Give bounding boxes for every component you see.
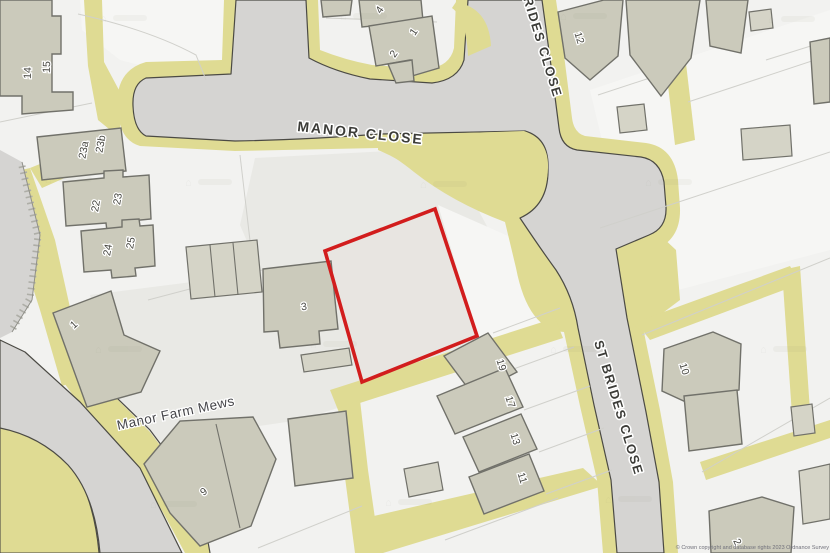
building-mews-square: [288, 411, 353, 486]
building-east-edge: [810, 38, 830, 104]
building-stub-left: [321, 0, 352, 17]
svg-text:⌂: ⌂: [100, 13, 107, 25]
house-number-23: 23: [111, 192, 125, 206]
house-number-24: 24: [101, 243, 115, 257]
svg-text:⌂: ⌂: [560, 11, 567, 23]
building-shed: [404, 462, 443, 497]
svg-text:⌂: ⌂: [95, 344, 102, 356]
copyright-attribution: © Crown copyright and database rights 20…: [676, 544, 830, 551]
svg-text:⌂: ⌂: [768, 14, 775, 26]
svg-text:⌂: ⌂: [340, 11, 347, 23]
svg-text:⌂: ⌂: [45, 174, 52, 186]
svg-text:⌂: ⌂: [420, 179, 427, 191]
house-number-22: 22: [89, 199, 103, 213]
building-ne-d: [741, 125, 792, 160]
svg-text:⌂: ⌂: [185, 177, 192, 189]
building-ne-e: [617, 104, 647, 133]
building-corner-se: [799, 464, 830, 524]
svg-text:⌂: ⌂: [550, 344, 557, 356]
house-number-25: 25: [124, 236, 138, 250]
map-canvas[interactable]: MANOR CLOSE BRIDES CLOSE ST BRIDES CLOSE…: [0, 0, 830, 553]
building-ne-b: [706, 0, 748, 53]
house-number-14: 14: [22, 67, 34, 79]
svg-text:⌂: ⌂: [150, 499, 157, 511]
svg-text:⌂: ⌂: [760, 344, 767, 356]
svg-text:⌂: ⌂: [645, 177, 652, 189]
garage-row: [186, 240, 262, 299]
map-viewport[interactable]: MANOR CLOSE BRIDES CLOSE ST BRIDES CLOSE…: [0, 0, 830, 553]
svg-text:⌂: ⌂: [310, 339, 317, 351]
svg-text:⌂: ⌂: [385, 497, 392, 509]
svg-text:⌂: ⌂: [605, 494, 612, 506]
house-number-15: 15: [41, 61, 53, 73]
